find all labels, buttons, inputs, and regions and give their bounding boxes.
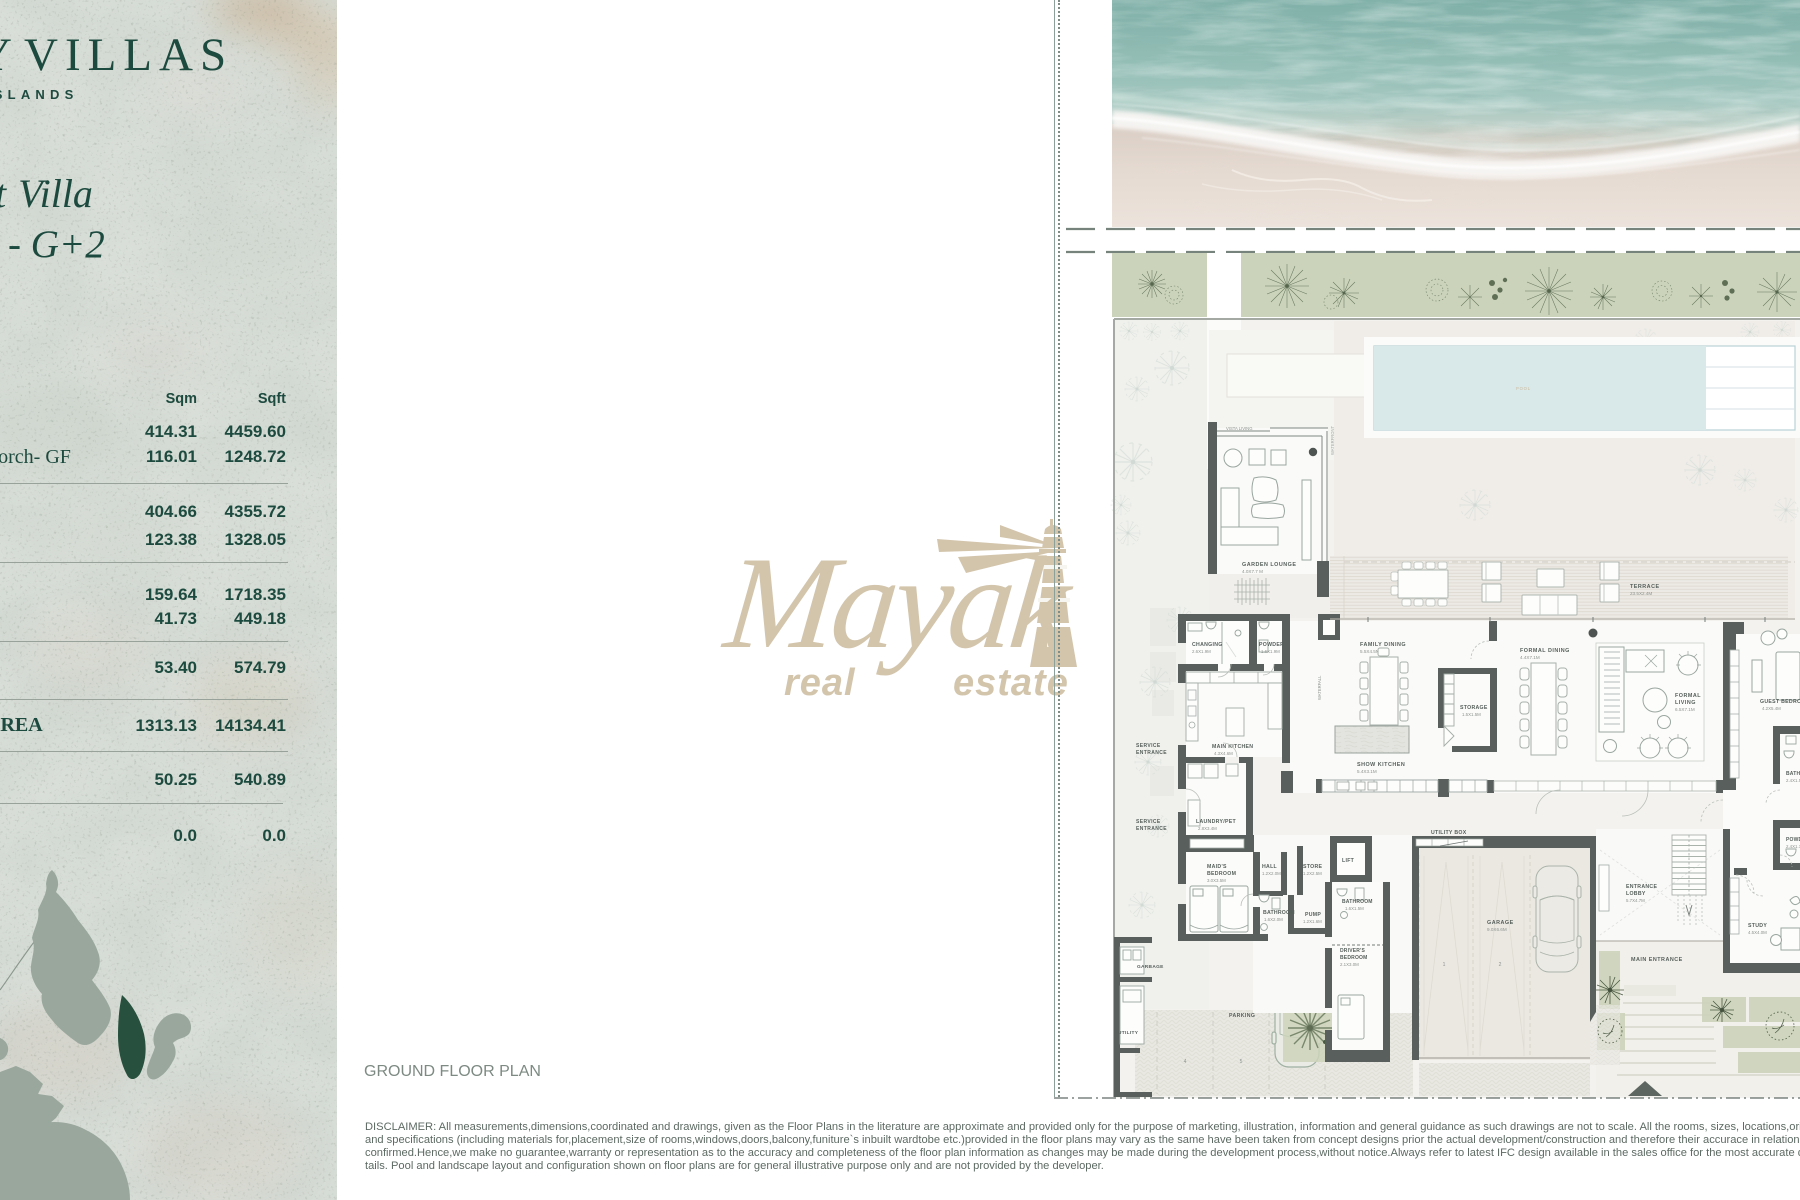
svg-text:ENTRANCE: ENTRANCE (1136, 750, 1167, 756)
svg-text:5: 5 (1240, 1059, 1243, 1065)
svg-text:LIVING: LIVING (1675, 700, 1696, 706)
svg-text:STUDY: STUDY (1748, 923, 1767, 929)
svg-text:SHOW KITCHEN: SHOW KITCHEN (1357, 762, 1405, 768)
svg-text:9.0X6.6M: 9.0X6.6M (1487, 927, 1507, 932)
svg-text:SERVICE: SERVICE (1136, 743, 1161, 749)
svg-text:POWDER: POWDER (1786, 837, 1800, 843)
svg-text:4.4X7.1M: 4.4X7.1M (1520, 655, 1540, 660)
svg-text:LIFT: LIFT (1342, 858, 1355, 864)
svg-text:estate: estate (953, 662, 1069, 704)
svg-text:WATERFRONT: WATERFRONT (1330, 425, 1335, 455)
svg-text:FORMAL DINING: FORMAL DINING (1520, 648, 1570, 654)
svg-text:1.2X2.0M: 1.2X2.0M (1262, 871, 1281, 876)
svg-text:2.8X3.4M: 2.8X3.4M (1198, 826, 1217, 831)
svg-text:POOL: POOL (1516, 386, 1531, 391)
svg-text:BATHROOM: BATHROOM (1263, 910, 1295, 916)
svg-text:3.0X3.5M: 3.0X3.5M (1207, 878, 1226, 883)
svg-text:SERVICE: SERVICE (1136, 819, 1161, 825)
svg-text:FORMAL: FORMAL (1675, 693, 1701, 699)
svg-text:POWDER: POWDER (1259, 642, 1284, 648)
svg-text:2.4X1.5M: 2.4X1.5M (1786, 778, 1800, 783)
svg-text:GARBAGE: GARBAGE (1137, 964, 1164, 970)
svg-text:1.6X1.9M: 1.6X1.9M (1261, 649, 1280, 654)
svg-text:HALL: HALL (1262, 864, 1278, 870)
svg-text:6.5X7.1M: 6.5X7.1M (1675, 707, 1695, 712)
svg-text:LOBBY: LOBBY (1626, 891, 1646, 897)
svg-text:1.6X2.0M: 1.6X2.0M (1264, 917, 1283, 922)
svg-text:DRIVER'S: DRIVER'S (1340, 948, 1365, 954)
svg-text:5.4X3.1M: 5.4X3.1M (1357, 769, 1377, 774)
svg-text:BATHROOM: BATHROOM (1786, 771, 1800, 777)
svg-text:ENTRANCE: ENTRANCE (1136, 826, 1167, 832)
svg-text:5.7X4.7M: 5.7X4.7M (1626, 898, 1645, 903)
svg-text:4.0X7.7 M: 4.0X7.7 M (1242, 569, 1263, 574)
svg-text:1: 1 (1443, 962, 1446, 968)
svg-text:GUEST BEDROOM: GUEST BEDROOM (1760, 699, 1800, 705)
svg-text:1.5X1.5M: 1.5X1.5M (1462, 712, 1481, 717)
svg-text:2.6X1.9M: 2.6X1.9M (1192, 649, 1211, 654)
svg-text:ENTRANCE: ENTRANCE (1626, 884, 1657, 890)
svg-text:STORE: STORE (1303, 864, 1323, 870)
svg-text:BEDROOM: BEDROOM (1340, 955, 1368, 961)
svg-text:MAIN ENTRANCE: MAIN ENTRANCE (1631, 957, 1683, 963)
svg-text:23.5X2.4M: 23.5X2.4M (1630, 591, 1652, 596)
svg-text:GARAGE: GARAGE (1487, 920, 1514, 926)
svg-text:TERRACE: TERRACE (1630, 584, 1660, 590)
svg-text:1.2X1.6M: 1.2X1.6M (1303, 919, 1322, 924)
svg-text:FAMILY DINING: FAMILY DINING (1360, 642, 1406, 648)
svg-text:1.2X2.5M: 1.2X2.5M (1303, 871, 1322, 876)
svg-text:LAUNDRY/PET: LAUNDRY/PET (1196, 819, 1237, 825)
svg-text:PARKING: PARKING (1229, 1013, 1255, 1019)
svg-text:UTILITY: UTILITY (1118, 1030, 1139, 1036)
svg-text:VISTA LIVING: VISTA LIVING (1226, 426, 1252, 431)
svg-text:5.5X4.5M: 5.5X4.5M (1360, 649, 1380, 654)
svg-text:2.1X3.0M: 2.1X3.0M (1340, 962, 1359, 967)
svg-text:4: 4 (1184, 1059, 1187, 1065)
svg-text:CHANGING: CHANGING (1192, 642, 1223, 648)
svg-text:BEDROOM: BEDROOM (1207, 871, 1236, 877)
svg-text:GARDEN LOUNGE: GARDEN LOUNGE (1242, 562, 1296, 568)
svg-text:Mayak: Mayak (717, 529, 1080, 676)
svg-text:PUMP: PUMP (1305, 912, 1321, 918)
svg-text:4.5X4.0M: 4.5X4.0M (1748, 930, 1767, 935)
svg-text:real: real (784, 662, 856, 704)
svg-text:MAID'S: MAID'S (1207, 864, 1227, 870)
svg-text:2.4X1.1M: 2.4X1.1M (1786, 844, 1800, 849)
svg-text:WATERFALL: WATERFALL (1317, 675, 1322, 700)
svg-text:UTILITY BOX: UTILITY BOX (1431, 830, 1467, 836)
svg-text:4.3X4.6M: 4.3X4.6M (1214, 751, 1233, 756)
svg-text:4.2X5.4M: 4.2X5.4M (1762, 706, 1781, 711)
svg-text:STORAGE: STORAGE (1460, 705, 1488, 711)
svg-text:2: 2 (1499, 962, 1502, 968)
svg-text:1.6X1.5M: 1.6X1.5M (1345, 906, 1364, 911)
svg-text:BATHROOM: BATHROOM (1342, 899, 1373, 905)
